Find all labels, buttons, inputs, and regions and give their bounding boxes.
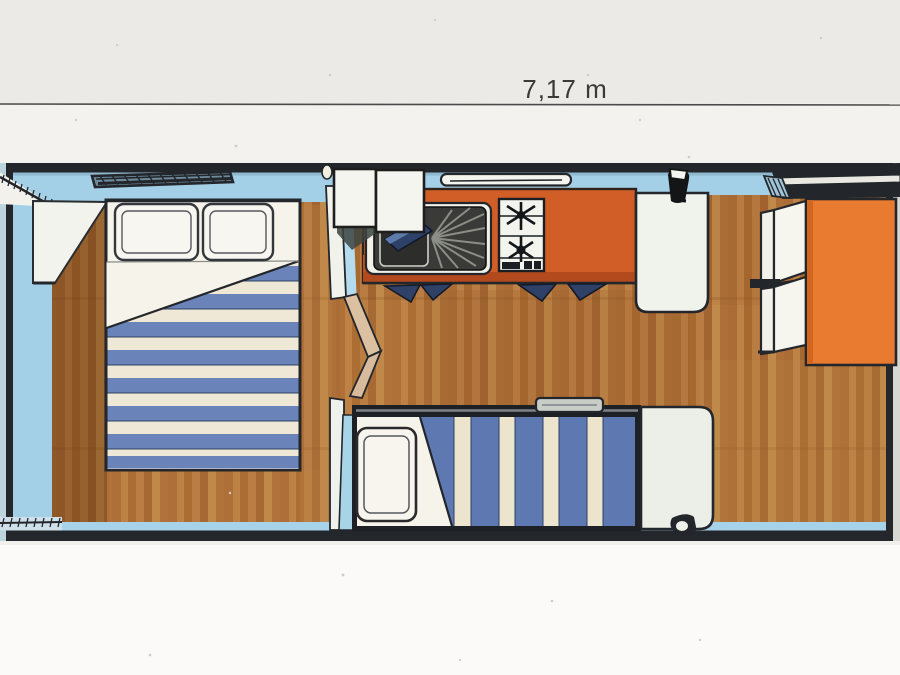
svg-text:7,17 m: 7,17 m bbox=[522, 74, 608, 104]
